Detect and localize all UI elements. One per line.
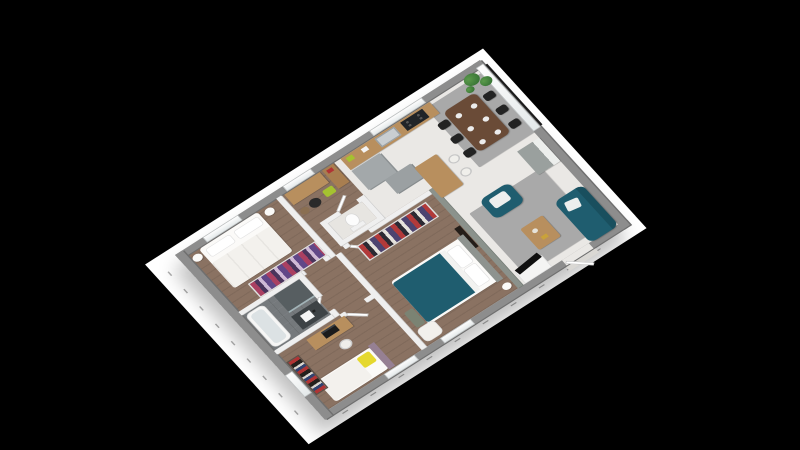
door-leaf: [346, 313, 368, 317]
screenshot-canvas: [0, 0, 800, 450]
